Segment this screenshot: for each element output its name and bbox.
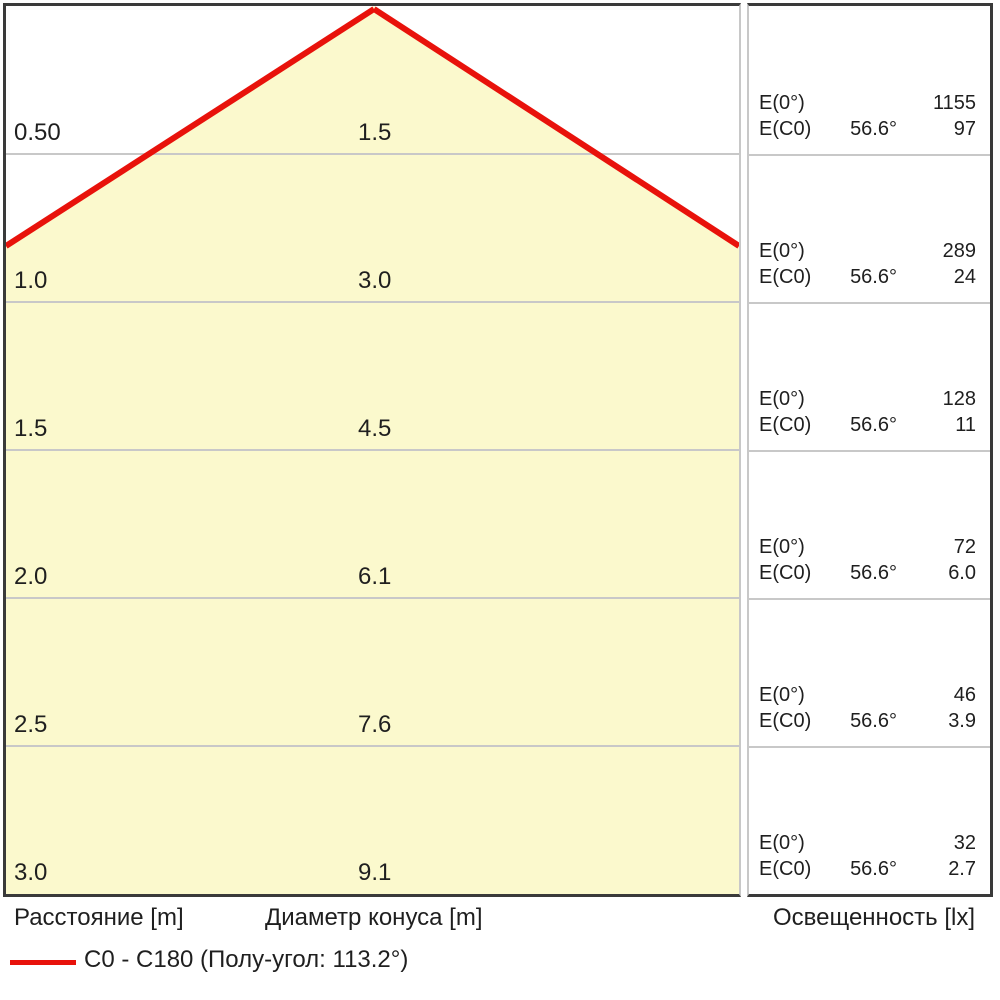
e0-line: E(0°) 128 [759,386,976,412]
ec0-line: E(C0) 56.6° 3.9 [759,708,976,734]
diameter-value: 4.5 [358,416,391,442]
diameter-axis-label: Диаметр конуса [m] [265,904,483,932]
cone-row: 1.0 3.0 [6,154,739,302]
e0-value: 72 [897,534,976,560]
e0-value: 46 [897,682,976,708]
cone-panel: 0.50 1.5 1.0 3.0 1.5 4.5 2.0 6.1 2.5 7.6… [3,3,741,897]
ec0-value: 6.0 [897,560,976,586]
cone-row: 2.0 6.1 [6,450,739,598]
e0-label: E(0°) [759,90,829,116]
illuminance-panel: E(0°) 1155 E(C0) 56.6° 97 E(0°) 289 E(C0… [747,3,993,897]
illuminance-cell: E(0°) 32 E(C0) 56.6° 2.7 [749,746,990,894]
e0-label: E(0°) [759,830,829,856]
ec0-value: 2.7 [897,856,976,882]
ec0-label: E(C0) [759,856,829,882]
ec0-angle: 56.6° [829,856,897,882]
ec0-line: E(C0) 56.6° 97 [759,116,976,142]
cone-row: 0.50 1.5 [6,6,739,154]
illuminance-cell: E(0°) 289 E(C0) 56.6° 24 [749,154,990,302]
legend-red-line-swatch [10,960,76,965]
diameter-value: 6.1 [358,564,391,590]
ec0-value: 24 [897,264,976,290]
ec0-line: E(C0) 56.6° 11 [759,412,976,438]
e0-value: 289 [897,238,976,264]
distance-value: 1.5 [14,416,47,442]
e0-line: E(0°) 46 [759,682,976,708]
ec0-label: E(C0) [759,560,829,586]
diameter-value: 9.1 [358,860,391,886]
distance-value: 1.0 [14,268,47,294]
cone-row: 3.0 9.1 [6,746,739,894]
e0-label: E(0°) [759,238,829,264]
ec0-value: 97 [897,116,976,142]
ec0-label: E(C0) [759,116,829,142]
diameter-value: 3.0 [358,268,391,294]
e0-value: 128 [897,386,976,412]
ec0-label: E(C0) [759,264,829,290]
illuminance-cell: E(0°) 128 E(C0) 56.6° 11 [749,302,990,450]
illuminance-cell: E(0°) 1155 E(C0) 56.6° 97 [749,6,990,154]
legend-label: C0 - C180 (Полу-угол: 113.2°) [84,946,408,974]
cone-row: 2.5 7.6 [6,598,739,746]
diameter-value: 7.6 [358,712,391,738]
diameter-value: 1.5 [358,120,391,146]
distance-value: 2.0 [14,564,47,590]
e0-label: E(0°) [759,682,829,708]
illuminance-axis-label: Освещенность [lx] [773,904,975,932]
e0-value: 32 [897,830,976,856]
e0-line: E(0°) 289 [759,238,976,264]
ec0-angle: 56.6° [829,412,897,438]
ec0-line: E(C0) 56.6° 24 [759,264,976,290]
distance-value: 0.50 [14,120,61,146]
distance-axis-label: Расстояние [m] [14,904,184,932]
ec0-angle: 56.6° [829,264,897,290]
e0-line: E(0°) 32 [759,830,976,856]
e0-label: E(0°) [759,386,829,412]
ec0-line: E(C0) 56.6° 6.0 [759,560,976,586]
ec0-angle: 56.6° [829,560,897,586]
ec0-label: E(C0) [759,412,829,438]
distance-value: 3.0 [14,860,47,886]
ec0-angle: 56.6° [829,116,897,142]
e0-label: E(0°) [759,534,829,560]
illuminance-cell: E(0°) 46 E(C0) 56.6° 3.9 [749,598,990,746]
ec0-line: E(C0) 56.6° 2.7 [759,856,976,882]
ec0-angle: 56.6° [829,708,897,734]
ec0-value: 11 [897,412,976,438]
illuminance-cell: E(0°) 72 E(C0) 56.6° 6.0 [749,450,990,598]
ec0-value: 3.9 [897,708,976,734]
light-cone-diagram: 0.50 1.5 1.0 3.0 1.5 4.5 2.0 6.1 2.5 7.6… [0,0,1000,1000]
e0-line: E(0°) 72 [759,534,976,560]
ec0-label: E(C0) [759,708,829,734]
distance-value: 2.5 [14,712,47,738]
e0-line: E(0°) 1155 [759,90,976,116]
cone-row: 1.5 4.5 [6,302,739,450]
e0-value: 1155 [897,90,976,116]
